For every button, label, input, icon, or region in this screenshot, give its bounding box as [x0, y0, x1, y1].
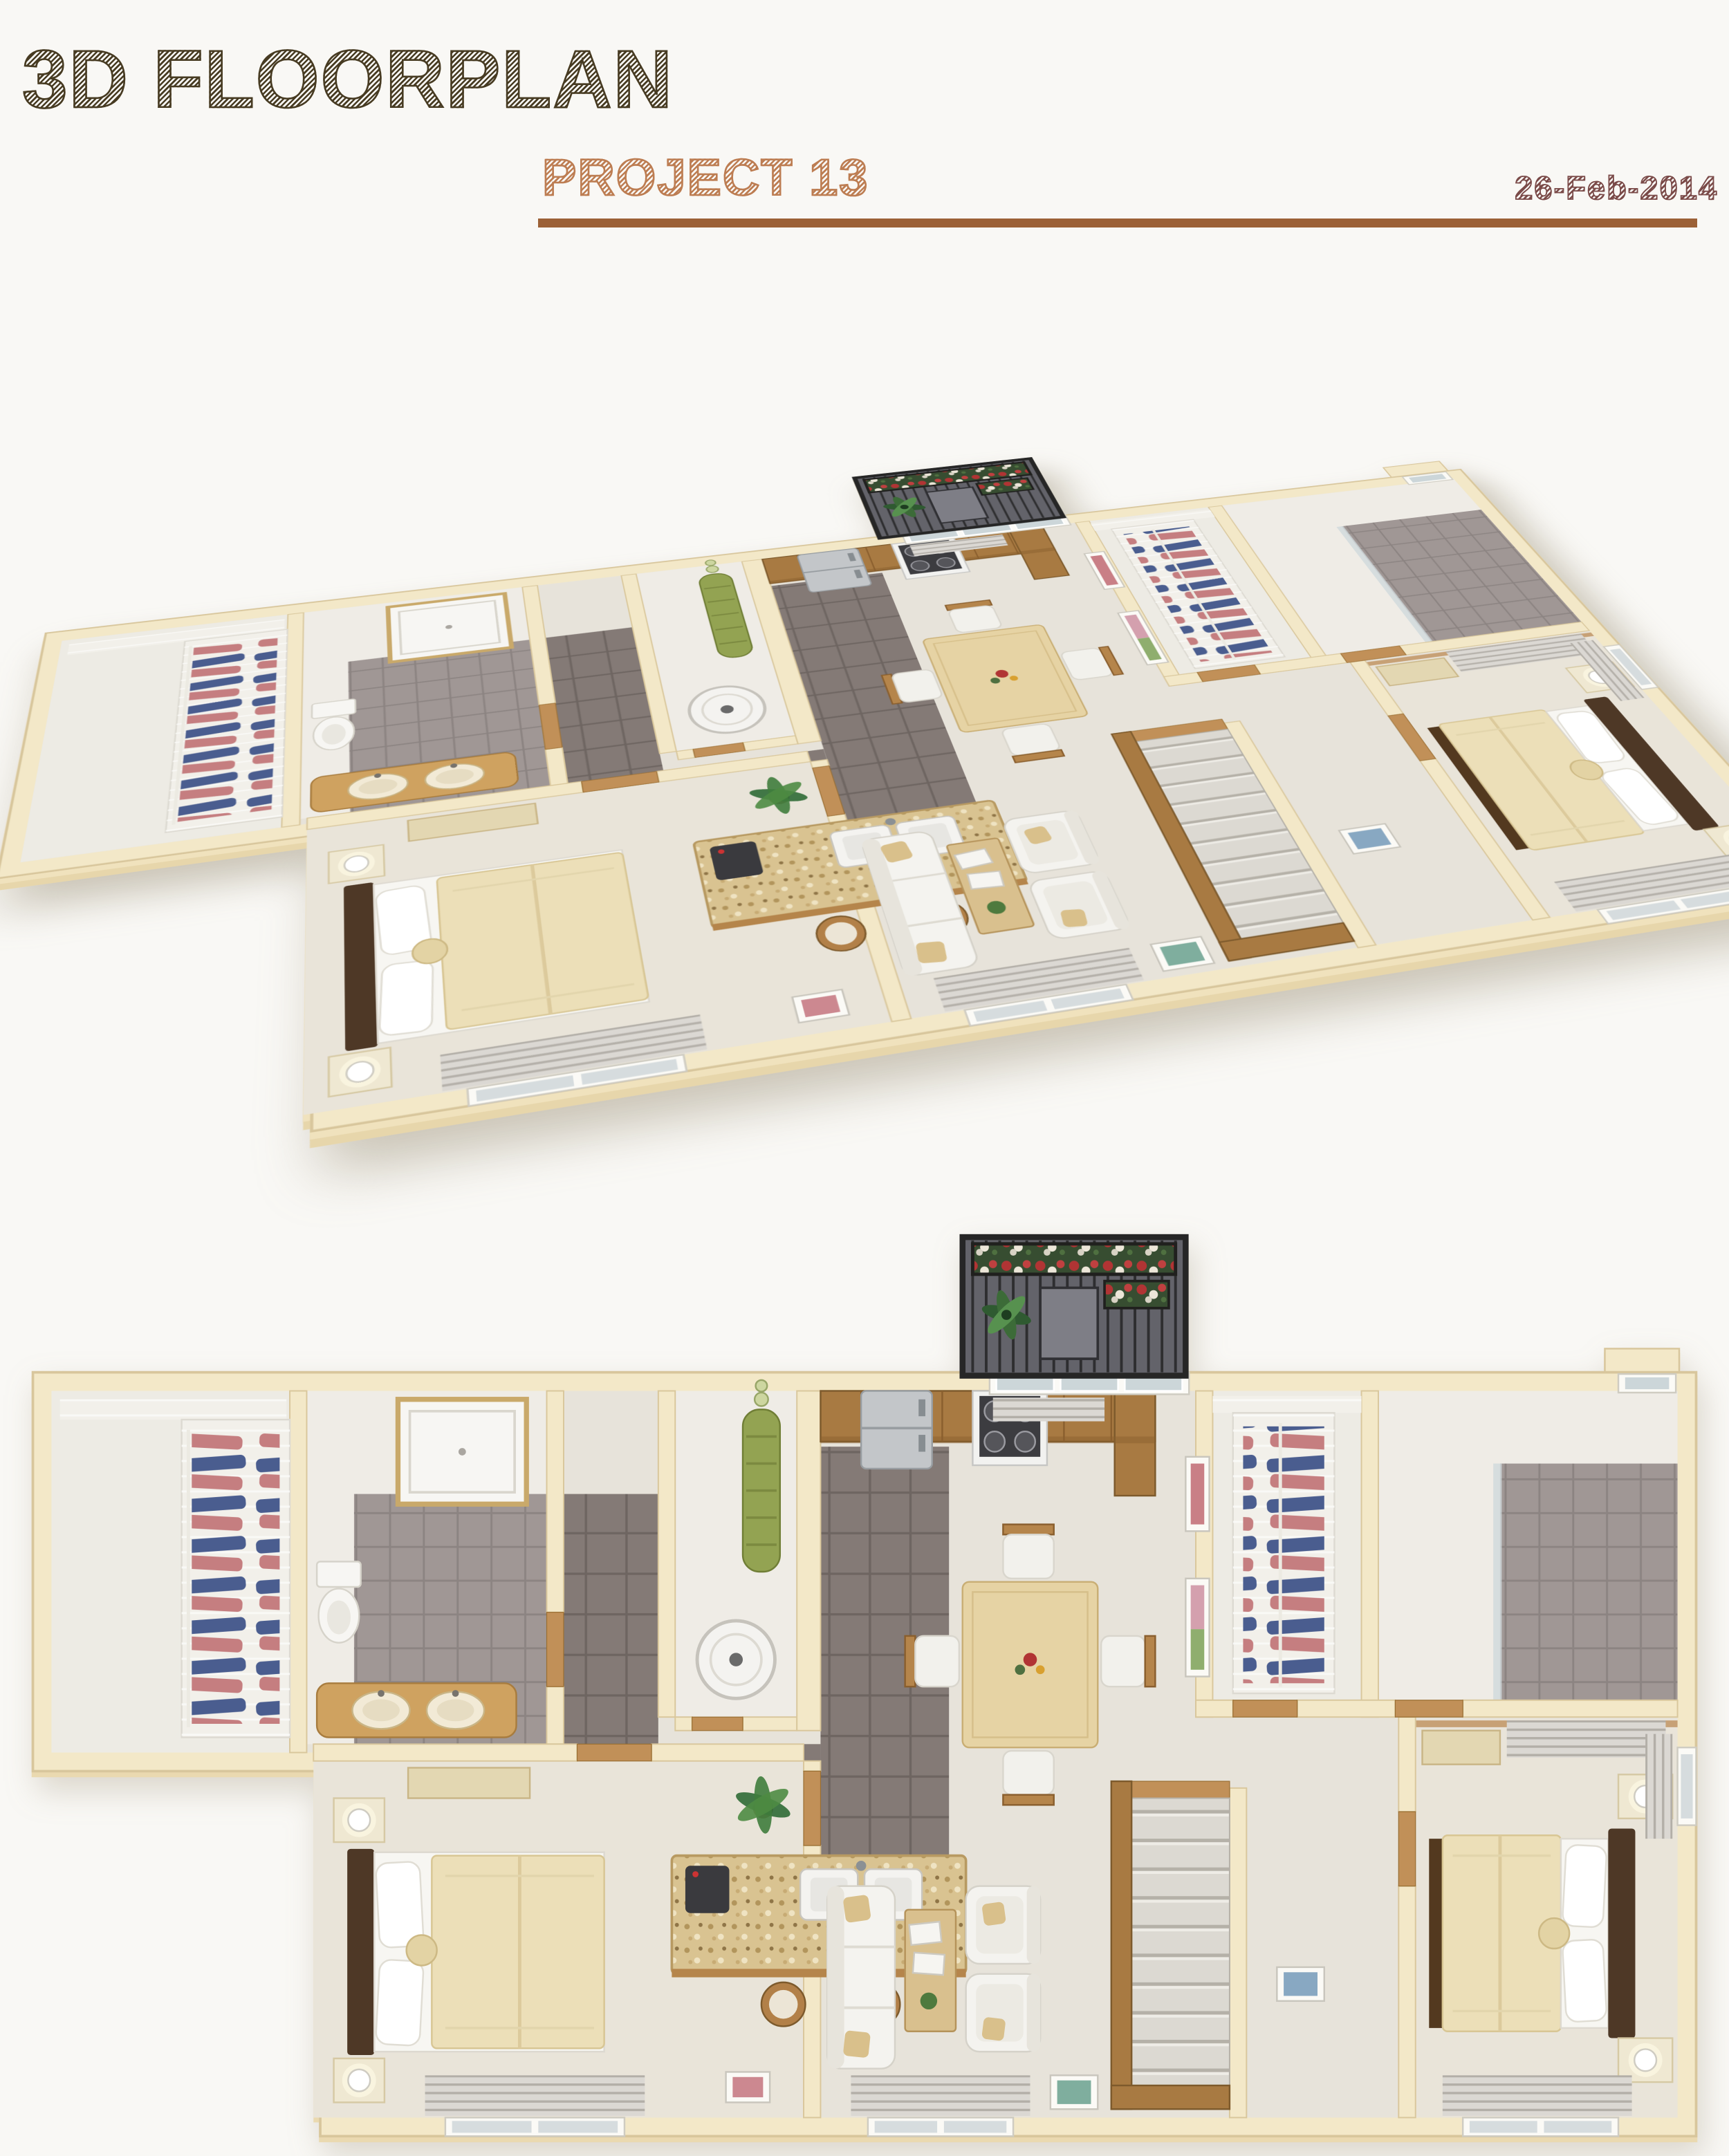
- top-down-plan: [33, 1237, 1696, 2136]
- project-subtitle: PROJECT 13: [542, 152, 869, 203]
- floorplan-document-page: 3D FLOORPLAN PROJECT 13 26-Feb-2014: [0, 0, 1729, 2156]
- top-down-floorplan-view: [19, 1210, 1710, 2152]
- date-label: 26-Feb-2014: [1515, 171, 1718, 204]
- isometric-plan: [0, 416, 1729, 1191]
- page-title: 3D FLOORPLAN: [22, 39, 674, 120]
- isometric-floorplan-view: [0, 405, 1729, 1211]
- divider-rule: [538, 219, 1697, 227]
